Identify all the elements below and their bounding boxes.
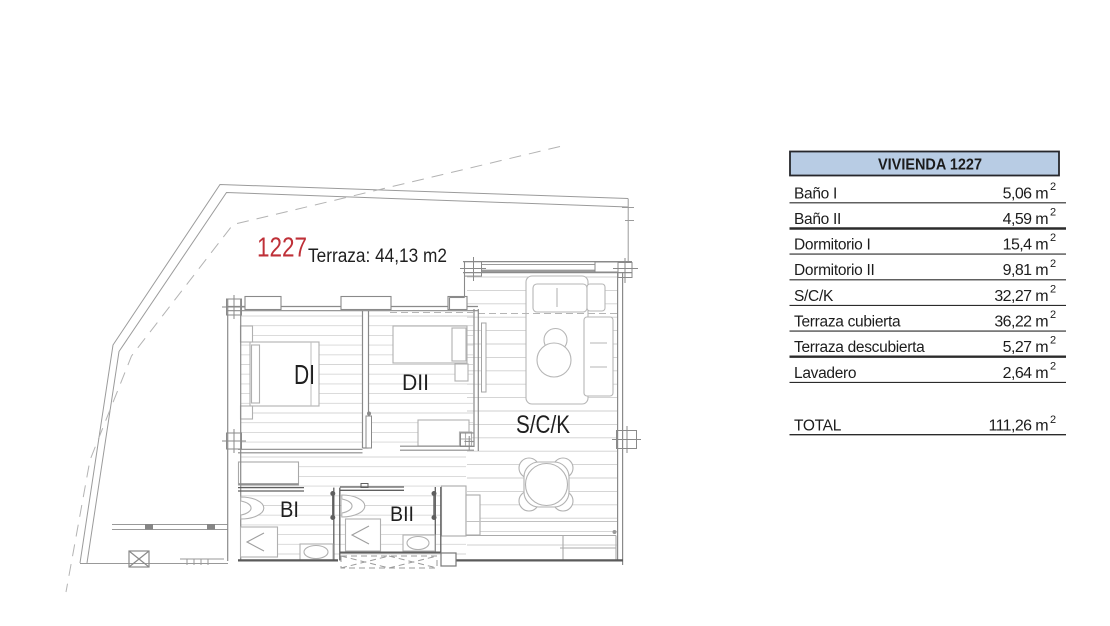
- svg-text:2: 2: [1050, 207, 1056, 219]
- svg-text:Terraza cubierta: Terraza cubierta: [794, 314, 901, 331]
- svg-text:BII: BII: [390, 503, 414, 526]
- svg-text:TOTAL: TOTAL: [794, 418, 842, 435]
- svg-text:2: 2: [1050, 335, 1056, 347]
- svg-text:2: 2: [1050, 232, 1056, 244]
- svg-text:Terraza descubierta: Terraza descubierta: [794, 339, 925, 356]
- svg-text:111,26 m: 111,26 m: [988, 418, 1048, 435]
- svg-text:9,81 m: 9,81 m: [1003, 262, 1049, 279]
- svg-text:BI: BI: [280, 497, 299, 522]
- svg-text:2: 2: [1050, 258, 1056, 270]
- svg-text:Terraza: 44,13 m2: Terraza: 44,13 m2: [308, 246, 447, 267]
- svg-text:Dormitorio I: Dormitorio I: [794, 237, 871, 254]
- svg-text:2: 2: [1050, 283, 1056, 295]
- svg-text:2: 2: [1050, 309, 1056, 321]
- svg-text:DI: DI: [294, 359, 315, 390]
- svg-text:5,06 m: 5,06 m: [1003, 185, 1049, 202]
- svg-text:Lavadero: Lavadero: [794, 365, 856, 382]
- svg-text:1227: 1227: [257, 232, 307, 263]
- svg-text:Dormitorio II: Dormitorio II: [794, 262, 875, 279]
- svg-text:2: 2: [1050, 360, 1056, 372]
- svg-text:2: 2: [1050, 414, 1056, 426]
- svg-text:36,22 m: 36,22 m: [994, 314, 1048, 331]
- svg-text:Baño II: Baño II: [794, 211, 841, 228]
- svg-text:DII: DII: [402, 370, 429, 395]
- svg-text:Baño I: Baño I: [794, 185, 837, 202]
- svg-text:S/C/K: S/C/K: [516, 411, 570, 439]
- svg-text:2: 2: [1050, 181, 1056, 193]
- svg-text:5,27 m: 5,27 m: [1003, 339, 1049, 356]
- svg-text:4,59 m: 4,59 m: [1003, 211, 1049, 228]
- svg-text:VIVIENDA 1227: VIVIENDA 1227: [878, 157, 982, 174]
- svg-text:15,4 m: 15,4 m: [1003, 237, 1049, 254]
- svg-text:2,64 m: 2,64 m: [1003, 365, 1049, 382]
- svg-text:32,27 m: 32,27 m: [994, 288, 1048, 305]
- svg-text:S/C/K: S/C/K: [794, 288, 834, 305]
